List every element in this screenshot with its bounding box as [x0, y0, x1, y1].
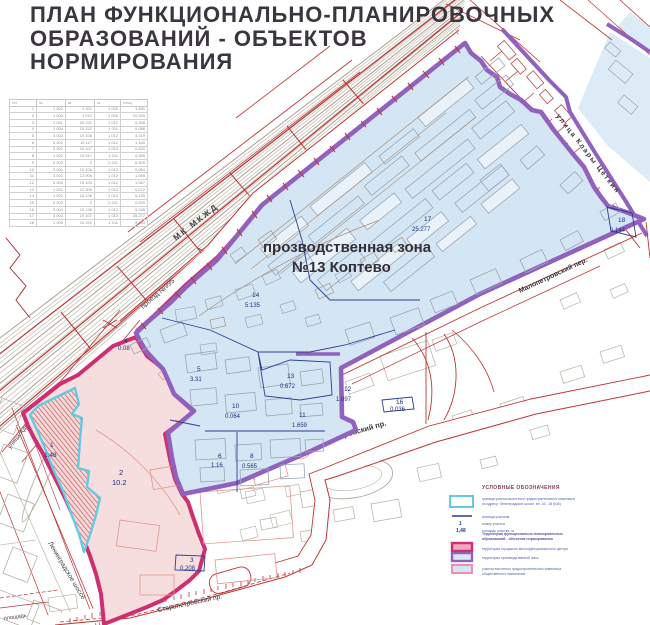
svg-text:номер участка: номер участка — [482, 522, 505, 526]
svg-text:1:48: 1:48 — [44, 452, 57, 459]
svg-text:8: 8 — [250, 453, 254, 460]
svg-text:участки высотного градостроите: участки высотного градостроительного ком… — [482, 567, 561, 571]
svg-text:1,48: 1,48 — [456, 528, 466, 534]
svg-text:11: 11 — [299, 412, 306, 419]
svg-text:12: 12 — [344, 386, 352, 393]
svg-text:прозводственная зона: прозводственная зона — [263, 239, 432, 256]
svg-text:0.08: 0.08 — [118, 346, 130, 352]
svg-text:25.277: 25.277 — [412, 227, 431, 233]
svg-text:0.144: 0.144 — [610, 228, 626, 234]
svg-text:16: 16 — [396, 399, 404, 406]
svg-text:0.672: 0.672 — [280, 384, 296, 390]
svg-text:общественного назначения: общественного назначения — [482, 572, 525, 576]
svg-text:территория городского многофун: территория городского многофункционально… — [482, 547, 568, 551]
svg-text:граница участка высотного град: граница участка высотного градостроитель… — [482, 497, 575, 501]
svg-text:14: 14 — [252, 292, 260, 299]
svg-text:17: 17 — [424, 216, 432, 223]
svg-text:1.16: 1.16 — [211, 463, 223, 469]
svg-text:УСЛОВНЫЕ ОБОЗНАЧЕНИЯ: УСЛОВНЫЕ ОБОЗНАЧЕНИЯ — [482, 485, 560, 491]
svg-text:№13 Коптево: №13 Коптево — [292, 259, 391, 276]
svg-text:0.208: 0.208 — [180, 566, 196, 572]
svg-text:граница участков: граница участков — [482, 515, 510, 519]
svg-text:2: 2 — [119, 468, 123, 477]
svg-text:18: 18 — [618, 217, 626, 224]
svg-text:1.097: 1.097 — [336, 397, 352, 403]
svg-text:по адресу: Ленинградское шоссе: по адресу: Ленинградское шоссе, вл. 16 -… — [482, 502, 561, 506]
svg-text:6: 6 — [218, 453, 222, 460]
svg-text:3: 3 — [190, 557, 194, 564]
svg-text:территория производственной зо: территория производственной зоны — [482, 556, 539, 560]
svg-text:0.036: 0.036 — [390, 407, 406, 413]
svg-text:0.064: 0.064 — [225, 414, 241, 420]
svg-text:1.659: 1.659 — [292, 423, 308, 429]
svg-text:1: 1 — [50, 442, 54, 449]
svg-text:4: 4 — [124, 338, 128, 345]
svg-text:13: 13 — [287, 373, 295, 380]
svg-text:5:135: 5:135 — [245, 303, 261, 309]
svg-text:1: 1 — [459, 521, 462, 527]
svg-text:0.565: 0.565 — [242, 464, 258, 470]
svg-text:10: 10 — [232, 403, 240, 410]
svg-text:образований - объектов нормиро: образований - объектов нормирования — [482, 537, 553, 541]
svg-text:10.2: 10.2 — [112, 478, 127, 487]
svg-text:3.31: 3.31 — [190, 377, 202, 383]
svg-text:Территория функционально-плани: Территория функционально-планировочных — [482, 532, 563, 536]
svg-text:5: 5 — [197, 366, 201, 373]
